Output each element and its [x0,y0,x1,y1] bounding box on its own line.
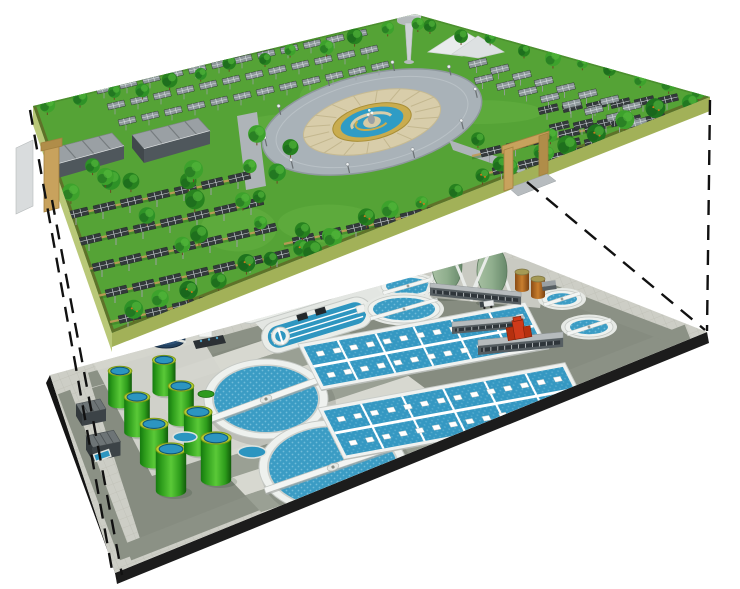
solar-panel [556,169,578,186]
scene-svg [0,0,740,589]
solar-panel [608,157,630,174]
solar-panel [440,228,463,246]
cutaway-illustration [0,0,740,589]
solar-panel [634,151,656,168]
solar-panel [656,130,677,146]
equipment-box [183,320,194,329]
equipment-box [199,327,212,337]
solar-panel [413,234,436,252]
orange-tank [515,269,529,292]
ground-tank-lid [198,391,214,398]
ground-pool [173,432,197,442]
solar-panel [680,128,701,144]
ground-pool [238,446,266,458]
solar-panel [359,246,382,264]
ditch-rack [267,285,278,294]
solar-panel [582,163,604,180]
access-ramp-left [16,140,33,214]
solar-panel [386,240,409,258]
ditch-rack [285,280,296,289]
projection-dashed-line [707,100,710,331]
clarifier-small [561,315,617,340]
clarifier-small [538,288,586,310]
